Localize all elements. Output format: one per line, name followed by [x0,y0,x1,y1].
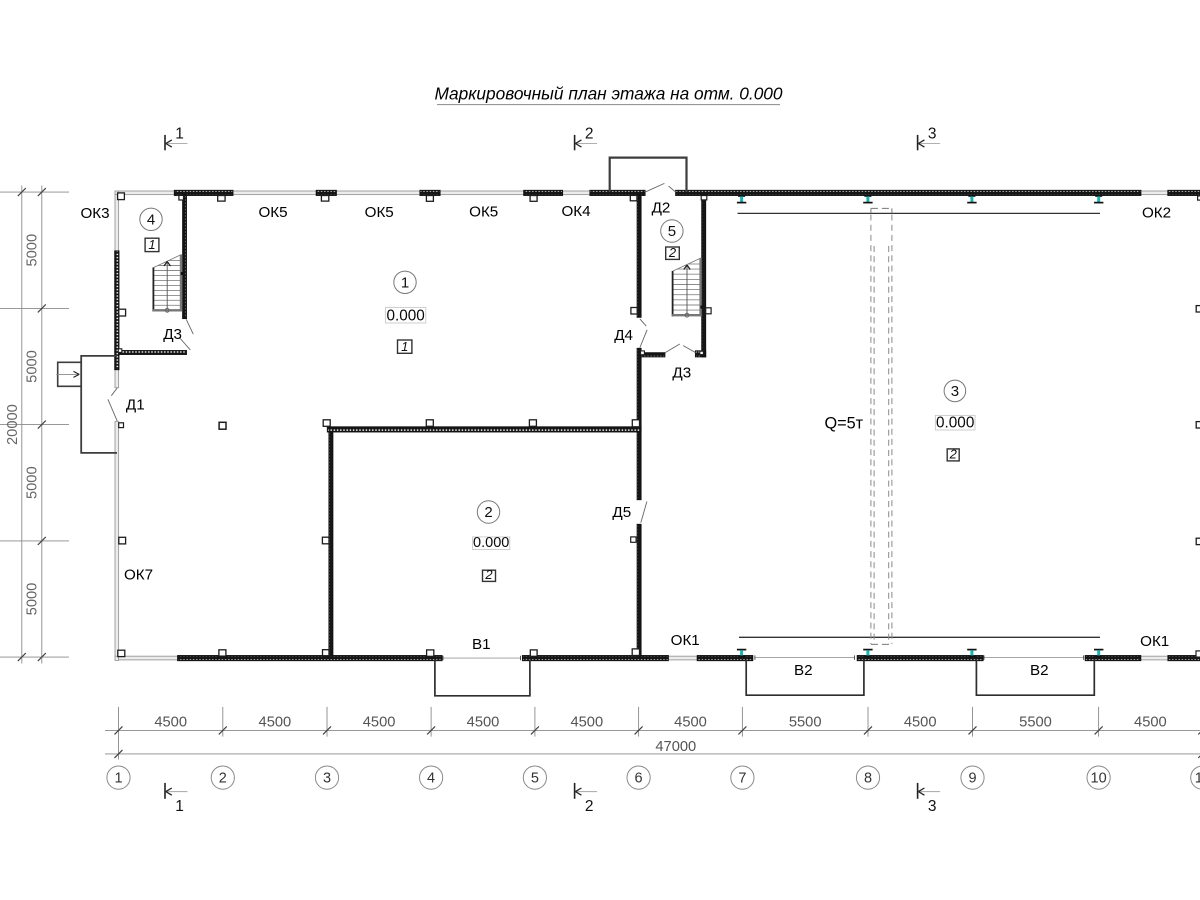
svg-text:4500: 4500 [904,715,937,731]
svg-text:5: 5 [531,771,539,787]
svg-text:1: 1 [401,339,408,354]
svg-text:ОК5: ОК5 [258,204,287,221]
svg-text:Д2: Д2 [652,199,671,216]
svg-text:4: 4 [427,771,435,787]
svg-text:1: 1 [148,237,155,252]
svg-text:5: 5 [668,223,676,240]
svg-text:5500: 5500 [789,715,822,731]
svg-text:4500: 4500 [363,715,396,731]
svg-text:20000: 20000 [5,404,21,445]
svg-text:5000: 5000 [25,583,41,616]
svg-text:1: 1 [401,275,409,292]
svg-text:ОК2: ОК2 [1142,205,1171,222]
svg-text:4500: 4500 [467,715,500,731]
svg-text:1: 1 [114,771,122,787]
svg-text:4500: 4500 [570,715,603,731]
svg-text:2: 2 [949,447,958,462]
svg-text:2: 2 [585,126,594,143]
svg-text:ОК1: ОК1 [1140,633,1169,650]
svg-text:Маркировочный план этажа на от: Маркировочный план этажа на отм. 0.000 [434,84,782,104]
svg-text:4500: 4500 [674,715,707,731]
svg-text:2: 2 [585,798,594,815]
svg-text:Д4: Д4 [614,327,633,344]
svg-text:2: 2 [484,504,492,521]
svg-text:4500: 4500 [1134,715,1167,731]
svg-text:4500: 4500 [259,715,292,731]
svg-text:3: 3 [323,771,331,787]
svg-text:5500: 5500 [1019,715,1052,731]
svg-text:7: 7 [738,771,746,787]
svg-text:9: 9 [968,771,976,787]
svg-text:ОК1: ОК1 [671,632,700,649]
svg-text:2: 2 [219,771,227,787]
svg-text:8: 8 [864,771,872,787]
svg-text:2: 2 [484,567,493,582]
svg-text:Q=5т: Q=5т [824,415,863,433]
svg-text:В2: В2 [1030,662,1049,679]
svg-text:Д3: Д3 [672,364,691,381]
svg-text:0.000: 0.000 [386,307,424,324]
svg-text:Д1: Д1 [126,397,145,414]
svg-text:ОК3: ОК3 [80,205,109,222]
svg-text:6: 6 [635,771,643,787]
svg-text:1: 1 [175,126,184,143]
svg-text:ОК4: ОК4 [561,203,590,220]
svg-text:В1: В1 [472,636,491,653]
svg-text:1: 1 [175,798,184,815]
svg-text:10: 10 [1091,771,1107,787]
svg-text:5000: 5000 [25,350,41,383]
svg-text:3: 3 [928,126,937,143]
svg-text:4500: 4500 [154,715,187,731]
svg-text:5000: 5000 [25,234,41,267]
svg-text:3: 3 [928,798,937,815]
svg-text:5000: 5000 [25,466,41,499]
svg-text:4: 4 [147,212,155,229]
svg-text:0.000: 0.000 [473,535,509,551]
svg-text:3: 3 [951,383,959,400]
svg-text:В2: В2 [794,662,813,679]
svg-text:ОК5: ОК5 [469,204,498,221]
svg-text:2: 2 [668,245,677,260]
svg-text:11: 11 [1195,771,1200,787]
svg-text:Д3: Д3 [163,326,182,343]
svg-text:47000: 47000 [655,739,696,755]
svg-text:0.000: 0.000 [936,414,974,431]
svg-text:ОК7: ОК7 [124,567,153,584]
svg-text:Д5: Д5 [612,504,631,521]
svg-text:ОК5: ОК5 [365,204,394,221]
